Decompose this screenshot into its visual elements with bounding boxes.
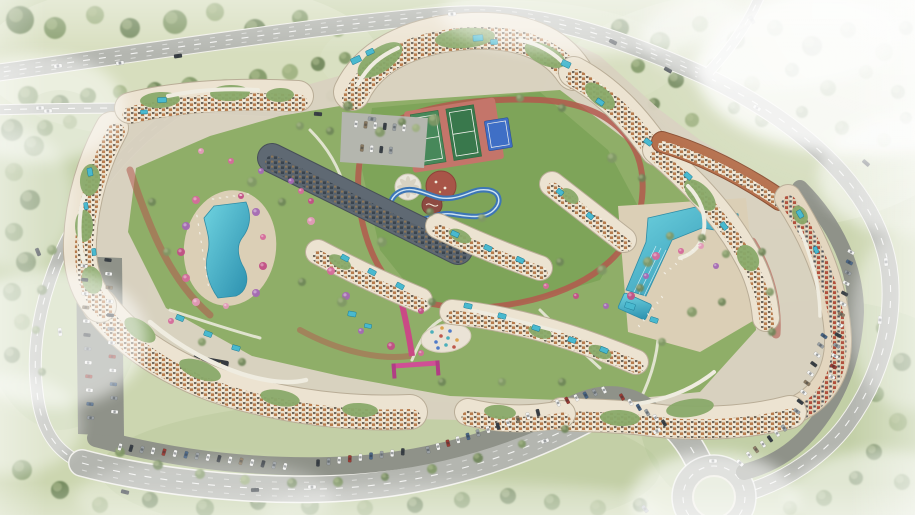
car-windshield [370, 117, 373, 120]
flowering-tree-highlight [193, 197, 196, 200]
splash-pad-dot [452, 345, 456, 349]
tree-highlight [644, 258, 649, 263]
flowering-tree [678, 248, 684, 254]
flowering-tree-highlight [178, 249, 181, 252]
tree-highlight [559, 379, 563, 383]
tree-highlight [562, 426, 566, 430]
tree-highlight [474, 454, 479, 459]
car [314, 112, 322, 116]
tree-highlight [199, 339, 203, 343]
tree [658, 338, 666, 346]
flowering-tree [288, 178, 294, 184]
splash-pad-dot [439, 334, 443, 338]
flowering-tree [168, 318, 174, 324]
flowering-tree [387, 342, 395, 350]
tree-highlight [479, 215, 483, 219]
tree [343, 101, 353, 111]
tree-highlight [767, 289, 771, 293]
flowering-tree-highlight [253, 290, 256, 293]
flowering-tree [223, 303, 229, 309]
flowering-tree-highlight [260, 263, 263, 266]
flowering-tree-highlight [644, 274, 646, 276]
tree [478, 214, 486, 222]
tree-highlight [149, 199, 153, 203]
flowering-tree-highlight [604, 304, 606, 306]
play-equipment [444, 187, 447, 190]
rooftop-pool [92, 248, 97, 255]
splash-pad-dot [446, 336, 450, 340]
tree-highlight [559, 105, 563, 109]
flowering-tree [192, 196, 200, 204]
car-windshield [402, 450, 404, 452]
aerial-render-image [0, 0, 915, 515]
car-windshield [389, 149, 392, 152]
tree [381, 473, 389, 481]
car [327, 458, 331, 465]
play-equipment [435, 181, 438, 184]
tree-highlight [688, 308, 693, 313]
car-windshield [403, 127, 406, 130]
tree-highlight [719, 299, 723, 303]
splash-pad-dot [444, 343, 448, 347]
car-windshield [327, 460, 329, 462]
render-canvas [0, 0, 915, 515]
flowering-tree [258, 168, 264, 174]
car-windshield [107, 259, 110, 262]
flowering-tree [182, 274, 190, 282]
flowering-tree [543, 283, 549, 289]
tree-highlight [637, 285, 641, 289]
flowering-tree-highlight [193, 299, 196, 302]
tree [636, 284, 644, 292]
tree-highlight [344, 102, 349, 107]
blue-sports-court [484, 118, 512, 151]
tree-highlight [759, 249, 763, 253]
tree [768, 328, 776, 336]
flowering-tree [252, 208, 260, 216]
car [104, 258, 111, 262]
car-windshield [113, 397, 116, 400]
tree [473, 453, 483, 463]
flowering-tree-highlight [183, 275, 186, 278]
car-windshield [374, 124, 377, 127]
tree [718, 298, 726, 306]
car [392, 124, 396, 131]
haze-corner-topright [600, 0, 915, 230]
car [389, 147, 393, 154]
flowering-tree [308, 198, 314, 204]
tree-highlight [312, 58, 319, 65]
tree [516, 94, 524, 102]
tree-highlight [297, 123, 301, 127]
flowering-tree-highlight [359, 329, 361, 331]
tree [498, 378, 506, 386]
car [401, 448, 405, 455]
tree-highlight [239, 359, 243, 363]
flowering-tree-highlight [714, 264, 716, 266]
car [111, 410, 118, 414]
tree [412, 124, 420, 132]
flowering-tree-highlight [253, 209, 256, 212]
tree [282, 64, 298, 80]
car [380, 451, 384, 458]
tree-highlight [378, 238, 383, 243]
splash-pad-dot [430, 330, 434, 334]
car-windshield [393, 126, 396, 129]
haze-edge-left [0, 0, 48, 515]
flowering-tree-highlight [169, 319, 171, 321]
flowering-tree-highlight [679, 249, 681, 251]
car [348, 455, 352, 462]
car [337, 457, 341, 464]
flowering-tree-highlight [653, 253, 656, 256]
flowering-tree [198, 148, 204, 154]
tree-highlight [164, 249, 168, 253]
car-windshield [349, 457, 351, 459]
tree-highlight [557, 259, 561, 263]
flowering-tree [307, 217, 315, 225]
flowering-tree-highlight [308, 218, 311, 221]
tree-highlight [427, 209, 431, 213]
car-windshield [316, 113, 319, 116]
car [354, 120, 358, 127]
tree [758, 248, 766, 256]
tree-highlight [299, 279, 303, 283]
tree [163, 248, 171, 256]
tree-highlight [769, 329, 773, 333]
tree-highlight [723, 251, 727, 255]
tree [722, 250, 730, 258]
flowering-tree [652, 252, 660, 260]
rooftop-pool [157, 97, 166, 102]
tree-highlight [279, 199, 283, 203]
car [360, 144, 364, 151]
tree-highlight [248, 178, 253, 183]
tree [326, 127, 334, 135]
flowering-tree-highlight [289, 179, 291, 181]
flowering-tree-highlight [419, 309, 421, 311]
tree [558, 378, 566, 386]
car-windshield [383, 125, 386, 128]
tree [428, 114, 440, 126]
flowering-tree [182, 222, 190, 230]
tree-highlight [519, 441, 523, 445]
car-windshield [355, 123, 358, 126]
tree [698, 234, 706, 242]
car-windshield [359, 456, 361, 458]
flowering-tree [260, 234, 266, 240]
splash-pad-dot [455, 338, 459, 342]
tree [426, 208, 434, 216]
flowering-tree [298, 188, 304, 194]
flowering-tree [238, 193, 244, 199]
tree [296, 122, 304, 130]
car-windshield [118, 61, 121, 64]
tree-highlight [429, 299, 433, 303]
car-windshield [89, 403, 92, 406]
car-windshield [380, 148, 383, 151]
tree [766, 288, 774, 296]
tree [518, 440, 526, 448]
tree-highlight [439, 379, 443, 383]
tree [643, 257, 653, 267]
splash-pad-dot [436, 346, 440, 350]
car [110, 396, 117, 400]
car [105, 272, 112, 276]
tree [337, 297, 347, 307]
tree [597, 265, 607, 275]
flowering-tree [627, 292, 635, 300]
flowering-tree [358, 328, 364, 334]
tree [561, 425, 569, 433]
tree-highlight [284, 65, 292, 73]
tree [558, 104, 566, 112]
tree-highlight [399, 119, 403, 123]
tree-highlight [428, 465, 433, 470]
tree [556, 258, 564, 266]
tree-highlight [699, 235, 703, 239]
car [364, 121, 368, 128]
car [373, 122, 377, 129]
car [369, 452, 373, 459]
car [383, 123, 387, 130]
flowering-tree-highlight [259, 169, 261, 171]
tree-highlight [382, 474, 386, 478]
flowering-tree [603, 303, 609, 309]
car-windshield [380, 453, 382, 455]
car [87, 416, 94, 420]
car [402, 124, 406, 131]
car-windshield [89, 416, 92, 419]
flowering-tree [327, 267, 335, 275]
flowering-tree-highlight [309, 199, 311, 201]
flowering-tree [713, 263, 719, 269]
tree [198, 338, 206, 346]
tree-highlight [429, 115, 435, 121]
car-windshield [391, 452, 393, 454]
tree-highlight [327, 128, 331, 132]
car-windshield [361, 147, 364, 150]
car [80, 264, 87, 268]
splash-pad-dot [434, 340, 438, 344]
tree-highlight [251, 70, 260, 79]
tree [687, 307, 697, 317]
flowering-tree-highlight [199, 149, 201, 151]
car-windshield [338, 459, 340, 461]
flowering-tree-highlight [261, 235, 263, 237]
car-windshield [83, 265, 86, 268]
flowering-tree-highlight [628, 293, 631, 296]
flowering-tree [573, 293, 579, 299]
flowering-tree-highlight [224, 304, 226, 306]
tree [298, 278, 306, 286]
tree [666, 232, 674, 240]
flowering-tree-highlight [229, 159, 231, 161]
flowering-tree [192, 298, 200, 306]
car [370, 145, 374, 152]
car [379, 146, 383, 153]
flowering-tree-highlight [183, 223, 186, 226]
tree-highlight [667, 233, 671, 237]
splash-pad-dot [448, 329, 452, 333]
north-parking-lot [340, 112, 428, 168]
flowering-tree-highlight [299, 189, 301, 191]
tree-highlight [659, 339, 663, 343]
flowering-tree-highlight [419, 351, 421, 353]
rooftop-pool [348, 311, 357, 317]
flowering-tree-highlight [328, 268, 331, 271]
flowering-tree [259, 262, 267, 270]
car [390, 450, 394, 457]
car-windshield [113, 410, 116, 413]
tree [148, 198, 156, 206]
tree-highlight [517, 95, 521, 99]
rooftop-pool [140, 110, 147, 114]
car-windshield [317, 462, 319, 464]
play-equipment [439, 191, 441, 193]
tree [427, 464, 437, 474]
tree-highlight [413, 125, 417, 129]
flowering-tree-highlight [574, 294, 576, 296]
car-windshield [370, 147, 373, 150]
tree-highlight [338, 298, 343, 303]
rooftop-pool [364, 323, 372, 328]
flowering-tree [252, 289, 260, 297]
flowering-tree [228, 158, 234, 164]
tree [278, 198, 286, 206]
tree [238, 358, 246, 366]
flowering-tree-highlight [388, 343, 391, 346]
flowering-tree-highlight [544, 284, 546, 286]
flowering-tree [418, 308, 424, 314]
tree [377, 237, 387, 247]
car-windshield [364, 123, 367, 126]
tree [247, 177, 257, 187]
flowering-tree [418, 350, 424, 356]
flowering-tree [177, 248, 185, 256]
car [316, 459, 320, 466]
rooftop-pool [87, 168, 93, 177]
rooftop-pool [84, 202, 89, 209]
tree-highlight [598, 266, 603, 271]
tree-highlight [499, 379, 503, 383]
car [359, 454, 363, 461]
tree [438, 378, 446, 386]
flowering-tree-highlight [343, 293, 346, 296]
haze-edge-bottom [0, 482, 915, 515]
car-windshield [370, 455, 372, 457]
splash-pad-dot [440, 326, 444, 330]
tree [428, 298, 436, 306]
car-windshield [107, 272, 110, 275]
car [116, 61, 124, 66]
flowering-tree [643, 273, 649, 279]
tree [311, 57, 325, 71]
